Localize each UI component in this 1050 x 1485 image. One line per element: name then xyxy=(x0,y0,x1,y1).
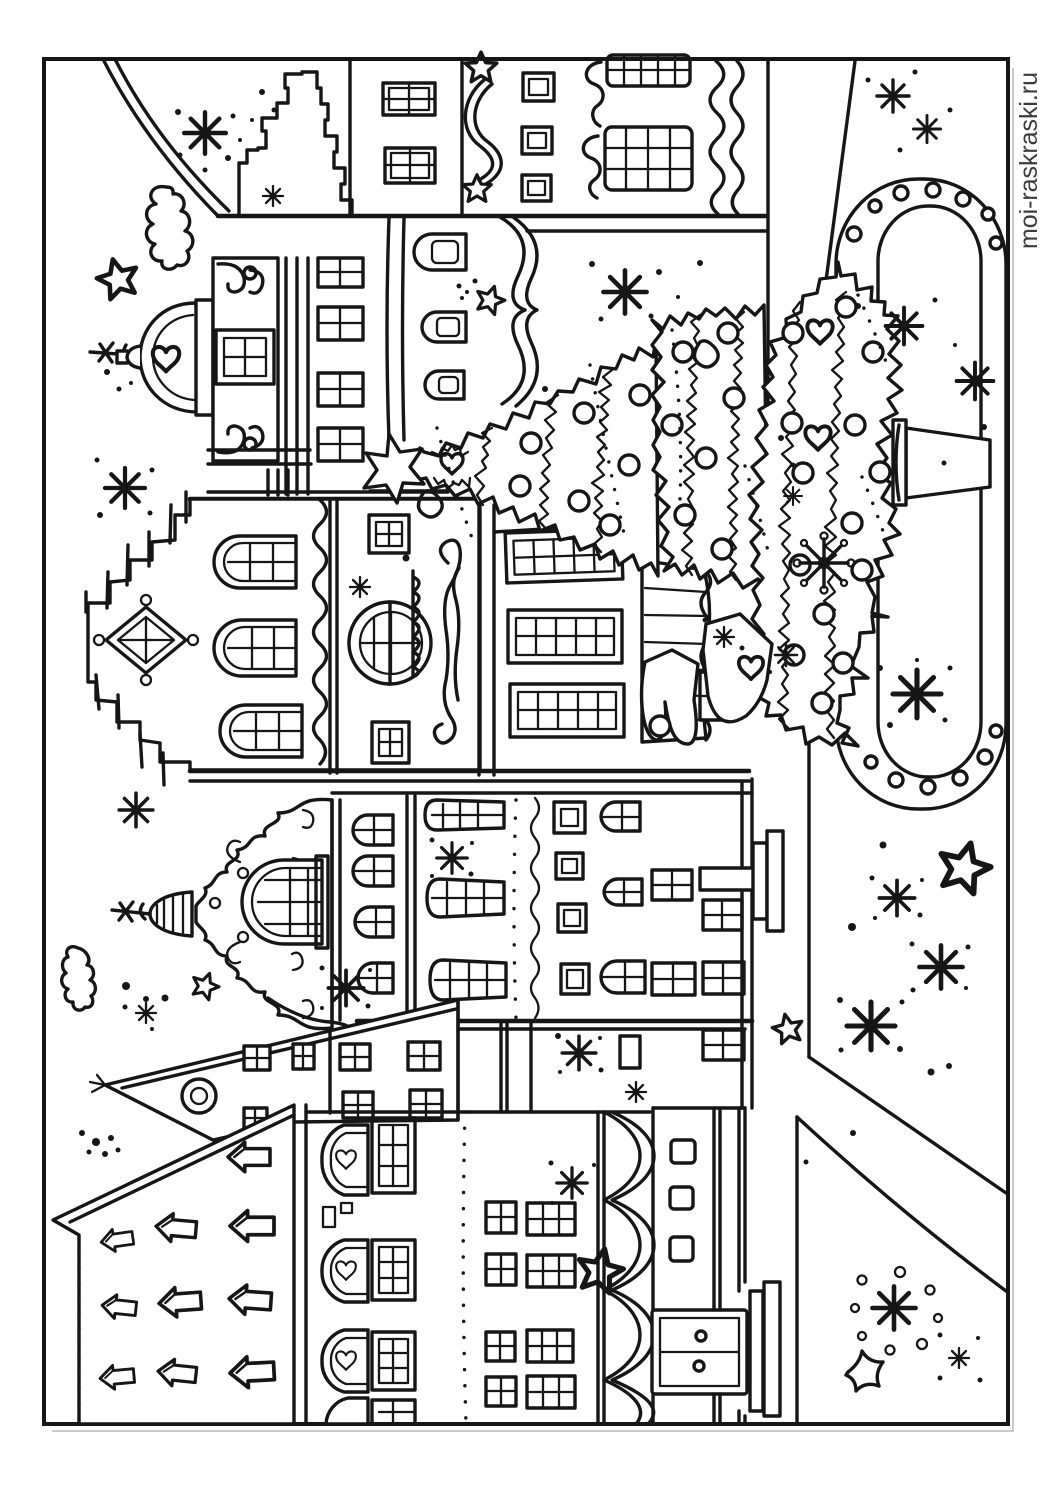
svg-text:moi-raskraski.ru: moi-raskraski.ru xyxy=(1015,72,1043,249)
